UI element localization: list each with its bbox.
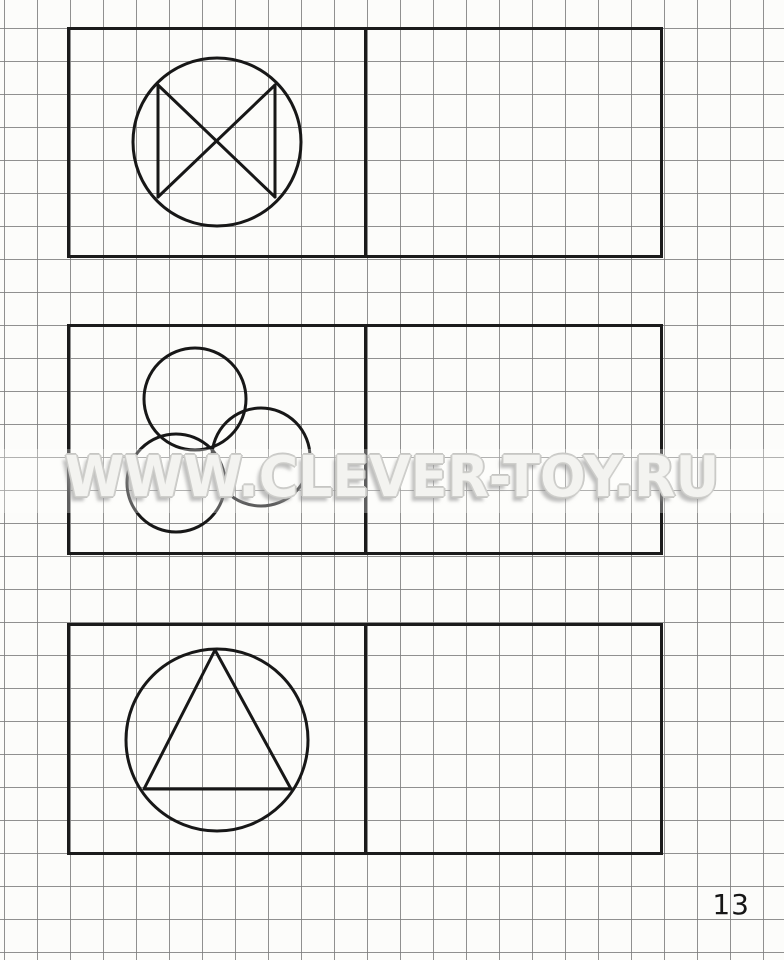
page-number: 13 (712, 888, 750, 921)
box-divider-line (364, 324, 367, 555)
exercise-box-2 (67, 324, 663, 555)
worksheet-page: WWW.CLEVER-TOY.RU 13 (0, 0, 784, 960)
exercise-box-1 (67, 27, 663, 258)
exercise-box-3 (67, 623, 663, 855)
box-divider-line (364, 623, 367, 855)
box-divider-line (364, 27, 367, 258)
